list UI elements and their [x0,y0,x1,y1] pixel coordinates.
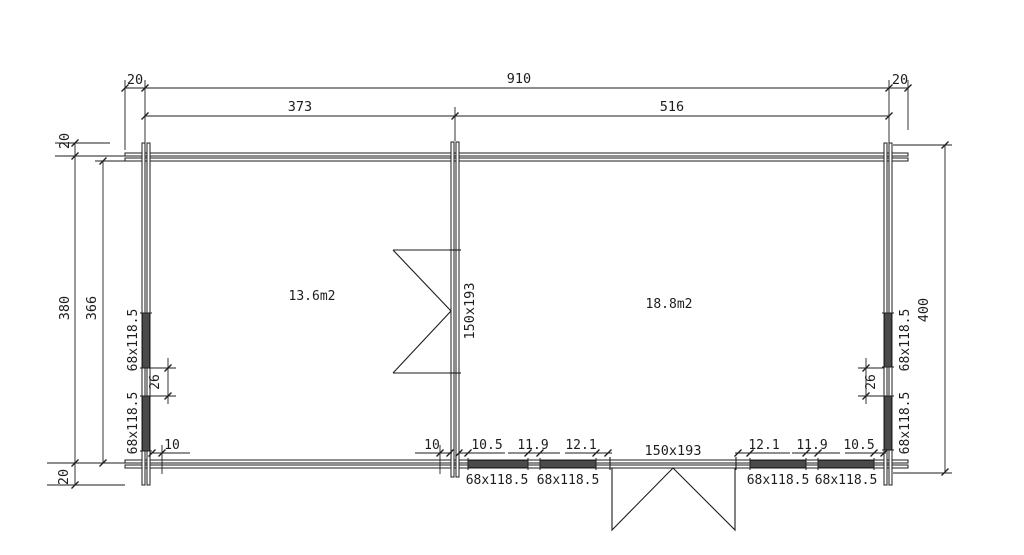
window-bottom-c-label: 68x118.5 [747,473,810,488]
dim-bottom-gap-c-label: 12.1 [565,438,596,453]
dim-room2-width-label: 516 [660,99,684,115]
dim-bottom-corner-offset-label: 10 [164,438,180,453]
dim-bottom-gap-d-label: 12.1 [748,438,779,453]
entrance-door-size-label: 150x193 [645,443,702,459]
window-right-lower-label: 68x118.5 [898,392,913,455]
dimension-lines [47,80,952,489]
dim-left-overhang-bottom-label: 20 [56,469,72,485]
dim-top-overall-label: 910 [507,71,531,87]
dim-bottom-partition-offset-label: 10 [424,438,440,453]
floor-plan-page: 20 910 20 373 516 20 380 366 20 400 68x1… [0,0,1024,555]
window-left-upper-label: 68x118.5 [126,309,141,372]
dim-bottom-gap-f-label: 10.5 [843,438,874,453]
dim-bottom-gap-e-label: 11.9 [796,438,827,453]
dim-top-overhang-left-label: 20 [127,72,143,88]
window-right-upper-label: 68x118.5 [898,309,913,372]
labels: 20 910 20 373 516 20 380 366 20 400 68x1… [56,71,932,488]
window-bottom-b-label: 68x118.5 [537,473,600,488]
dim-left-outer-label: 380 [57,296,73,320]
doors [393,250,736,530]
dimension-ticks [72,85,949,489]
dim-top-overhang-right-label: 20 [892,72,908,88]
window-left-lower-label: 68x118.5 [126,392,141,455]
walls [125,142,908,485]
interior-door-size-label: 150x193 [462,283,478,340]
floor-plan-canvas: 20 910 20 373 516 20 380 366 20 400 68x1… [0,0,1024,555]
dim-bottom-gap-a-label: 10.5 [471,438,502,453]
room-left-area-label: 13.6m2 [289,289,336,304]
room-right-area-label: 18.8m2 [646,297,693,312]
wall-top [125,153,908,161]
dim-left-overhang-top-label: 20 [57,133,73,149]
dim-right-window-gap-label: 26 [864,374,879,390]
dim-bottom-gap-b-label: 11.9 [517,438,548,453]
window-bottom-a-label: 68x118.5 [466,473,529,488]
dim-left-window-gap-label: 26 [148,374,163,390]
window-bottom-d-label: 68x118.5 [815,473,878,488]
dim-left-inner-label: 366 [84,296,100,320]
dim-right-overall-label: 400 [916,298,932,322]
wall-partition [451,142,459,477]
dim-room1-width-label: 373 [288,99,312,115]
